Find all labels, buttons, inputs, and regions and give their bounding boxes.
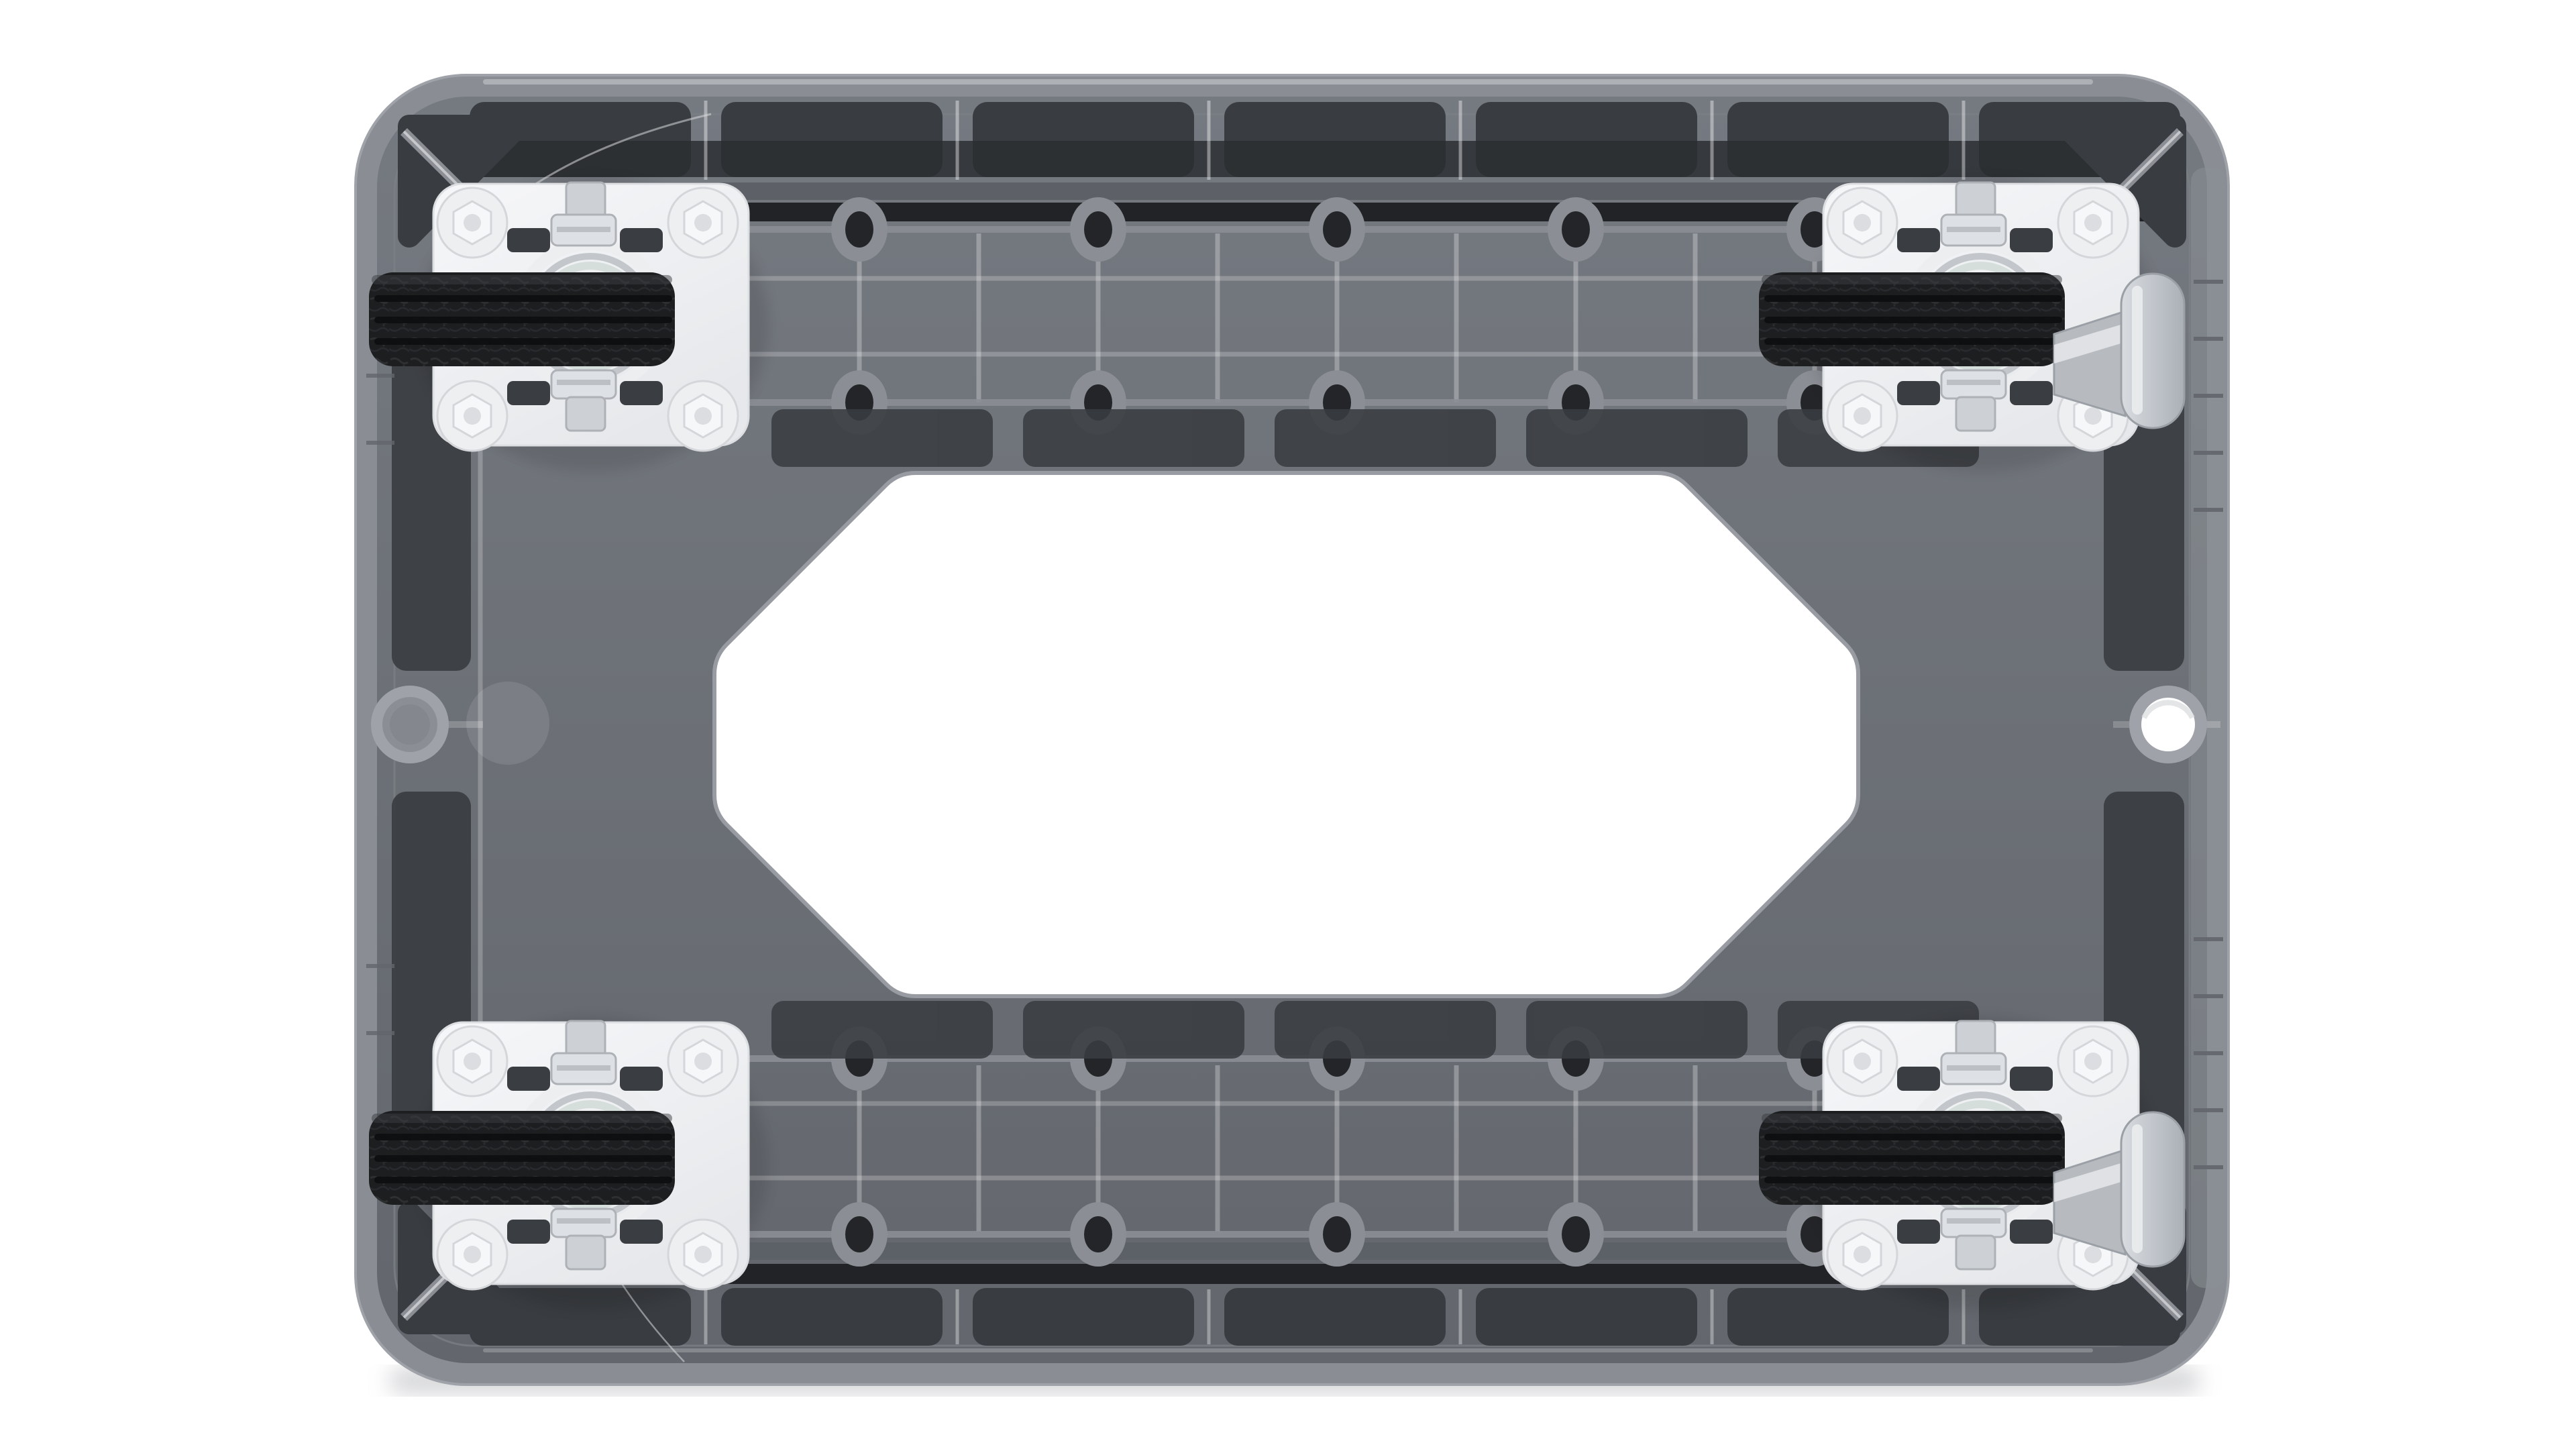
dolly-product-photo: Bottom view of a grey plastic platform d…: [0, 0, 2576, 1449]
central-octagonal-cutout: [714, 473, 1858, 996]
ghost-circle: [466, 682, 549, 765]
top-rail-specular: [483, 79, 2093, 85]
